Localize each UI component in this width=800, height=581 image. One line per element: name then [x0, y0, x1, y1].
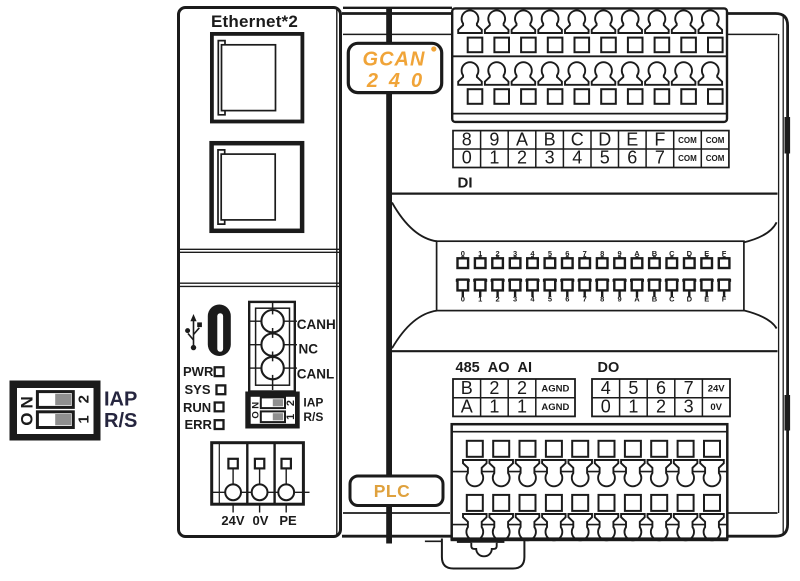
svg-text:1: 1	[489, 148, 499, 168]
svg-text:24V: 24V	[708, 384, 726, 395]
svg-text:7: 7	[655, 148, 665, 168]
svg-text:AGND: AGND	[541, 402, 569, 413]
svg-text:F: F	[722, 294, 727, 303]
svg-text:R/S: R/S	[303, 410, 323, 424]
svg-text:A: A	[634, 294, 640, 303]
svg-text:B: B	[544, 129, 556, 149]
svg-text:1: 1	[478, 294, 482, 303]
svg-text:1: 1	[517, 396, 527, 416]
svg-text:GCAN: GCAN	[363, 49, 426, 71]
svg-text:1: 1	[628, 396, 638, 416]
svg-text:1: 1	[285, 414, 297, 420]
svg-text:0: 0	[601, 396, 611, 416]
svg-text:6: 6	[565, 294, 569, 303]
svg-text:IAP: IAP	[104, 389, 137, 411]
svg-text:2: 2	[75, 395, 92, 403]
svg-text:5: 5	[628, 378, 638, 398]
svg-text:3: 3	[545, 148, 555, 168]
svg-text:1: 1	[489, 396, 499, 416]
svg-text:NC: NC	[299, 341, 319, 356]
svg-text:8: 8	[462, 129, 472, 149]
svg-text:IAP: IAP	[303, 395, 323, 409]
svg-text:ON: ON	[18, 392, 37, 426]
svg-text:F: F	[654, 129, 665, 149]
svg-text:3: 3	[684, 396, 694, 416]
svg-text:ON: ON	[250, 399, 261, 418]
svg-text:5: 5	[548, 294, 552, 303]
svg-text:0V: 0V	[253, 513, 269, 528]
svg-text:2: 2	[517, 378, 527, 398]
svg-text:4: 4	[601, 378, 611, 398]
svg-text:6: 6	[656, 378, 666, 398]
svg-text:C: C	[571, 129, 584, 149]
svg-text:Ethernet*2: Ethernet*2	[211, 12, 298, 31]
svg-text:ERR: ERR	[185, 417, 213, 432]
svg-text:0: 0	[462, 148, 472, 168]
svg-text:1: 1	[75, 415, 92, 423]
svg-text:COM: COM	[678, 154, 697, 163]
svg-text:2: 2	[517, 148, 527, 168]
svg-text:0V: 0V	[710, 402, 722, 413]
svg-text:B: B	[652, 294, 658, 303]
svg-text:DO: DO	[598, 360, 620, 376]
svg-text:A: A	[516, 129, 528, 149]
svg-text:2: 2	[285, 400, 297, 406]
svg-text:9: 9	[618, 294, 622, 303]
svg-text:D: D	[687, 294, 693, 303]
svg-text:7: 7	[684, 378, 694, 398]
svg-text:4: 4	[572, 148, 582, 168]
svg-text:2: 2	[656, 396, 666, 416]
svg-text:SYS: SYS	[185, 382, 211, 397]
svg-text:COM: COM	[706, 136, 725, 145]
svg-text:C: C	[669, 294, 675, 303]
svg-text:2: 2	[489, 378, 499, 398]
svg-text:COM: COM	[706, 154, 725, 163]
svg-text:PWR: PWR	[183, 364, 214, 379]
svg-text:PE: PE	[279, 513, 297, 528]
svg-text:6: 6	[627, 148, 637, 168]
svg-text:5: 5	[600, 148, 610, 168]
svg-text:R/S: R/S	[104, 410, 137, 432]
svg-text:DI: DI	[458, 175, 473, 192]
svg-text:8: 8	[600, 294, 604, 303]
svg-text:E: E	[704, 294, 709, 303]
svg-text:3: 3	[513, 294, 517, 303]
svg-text:A: A	[461, 396, 473, 416]
svg-text:COM: COM	[678, 136, 697, 145]
svg-text:E: E	[626, 129, 638, 149]
svg-text:RUN: RUN	[183, 400, 211, 415]
svg-text:24V: 24V	[221, 513, 244, 528]
svg-text:B: B	[461, 378, 473, 398]
svg-text:AGND: AGND	[541, 384, 569, 395]
svg-text:CANH: CANH	[297, 317, 336, 332]
svg-text:0: 0	[461, 294, 465, 303]
svg-text:2: 2	[496, 294, 500, 303]
svg-text:D: D	[598, 129, 611, 149]
svg-text:PLC: PLC	[374, 481, 411, 501]
svg-text:7: 7	[583, 294, 587, 303]
svg-text:240: 240	[366, 70, 433, 92]
svg-text:CANL: CANL	[297, 367, 335, 382]
svg-text:9: 9	[489, 129, 499, 149]
svg-text:485 AO AI: 485 AO AI	[456, 360, 533, 376]
